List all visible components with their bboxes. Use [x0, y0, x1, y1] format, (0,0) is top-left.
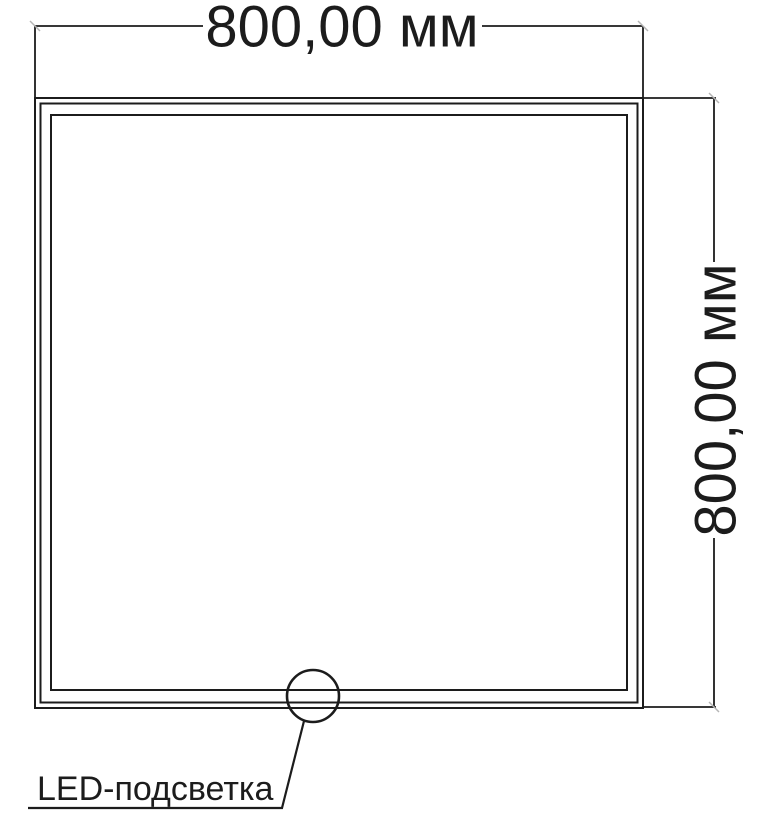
callout-label: LED-подсветка — [37, 770, 274, 808]
drawing-canvas: 800,00 мм 800,00 мм LED-подсветка — [0, 0, 769, 822]
top-dimension-label: 800,00 мм — [205, 0, 478, 60]
technical-drawing: 800,00 мм 800,00 мм LED-подсветка — [0, 0, 769, 822]
right-dimension-label: 800,00 мм — [684, 263, 749, 536]
drawing-background — [0, 0, 769, 822]
